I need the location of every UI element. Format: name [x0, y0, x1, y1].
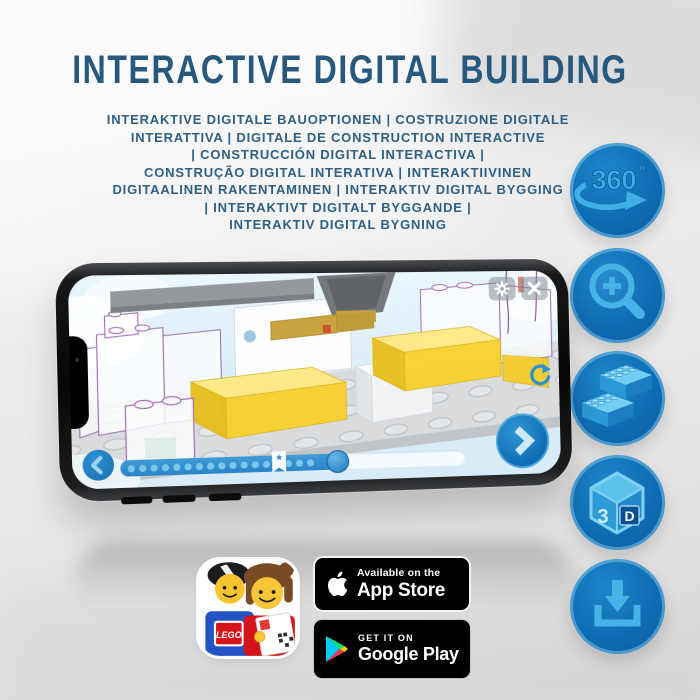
subtitle-line: INTERAKTIV DIGITAL BYGNING: [32, 216, 644, 234]
svg-text:LEGO: LEGO: [216, 630, 242, 640]
zoom-in-icon: [570, 248, 665, 343]
subtitle-line: INTERATTIVA | DIGITALE DE CONSTRUCTION I…: [32, 129, 644, 147]
camera-dot: [75, 358, 79, 362]
google-play-badge[interactable]: GET IT ON Google Play: [313, 619, 471, 679]
subtitle-line: DIGITAALINEN RAKENTAMINEN | INTERAKTIV D…: [32, 181, 644, 199]
phone-frame: ★: [55, 259, 573, 503]
lego-app-icon[interactable]: LEGO: [199, 560, 297, 656]
google-play-tagline: GET IT ON: [358, 633, 459, 643]
previous-step-button[interactable]: [82, 449, 114, 481]
phone-side-button: [163, 495, 196, 503]
lego-app-artwork: LEGO: [199, 560, 297, 656]
app-store-tagline: Available on the: [357, 567, 445, 579]
app-store-label: App Store: [357, 580, 445, 602]
close-icon: [526, 279, 543, 297]
svg-text:D: D: [624, 508, 634, 524]
3d-cube-icon: 3 D: [570, 455, 665, 550]
phone: ★: [55, 259, 573, 503]
poster: INTERACTIVE DIGITAL BUILDING INTERAKTIVE…: [0, 0, 700, 700]
rotate-button[interactable]: [527, 362, 552, 388]
lego-bricks-icon: [570, 351, 665, 446]
svg-text:º: º: [639, 163, 645, 180]
phone-screen: ★: [68, 271, 561, 490]
download-icon: [570, 559, 665, 654]
close-button[interactable]: [521, 276, 548, 300]
star-icon: ★: [275, 452, 283, 462]
subtitle-line: CONSTRUÇÃO DIGITAL INTERATIVA | INTERAKT…: [32, 164, 644, 182]
rotate-icon: [527, 362, 552, 388]
svg-text:3: 3: [597, 506, 608, 528]
svg-text:360: 360: [591, 165, 636, 195]
subtitle-line: INTERAKTIVE DIGITALE BAUOPTIONEN | COSTR…: [32, 111, 644, 129]
google-play-icon: [324, 635, 350, 663]
chevron-right-icon: [497, 415, 547, 467]
next-step-button[interactable]: [495, 413, 549, 469]
settings-button[interactable]: [488, 277, 515, 301]
subtitle-line: | INTERAKTIVT DIGITALT BYGGANDE |: [32, 199, 644, 217]
chevron-left-icon: [82, 449, 114, 481]
subtitle-line: | CONSTRUCCIÓN DIGITAL INTERACTIVA |: [32, 146, 644, 164]
subtitle: INTERAKTIVE DIGITALE BAUOPTIONEN | COSTR…: [32, 111, 644, 234]
apple-icon: [325, 570, 349, 598]
app-store-badge[interactable]: Available on the App Store: [313, 556, 471, 612]
page-title: INTERACTIVE DIGITAL BUILDING: [70, 48, 630, 93]
phone-notch: [68, 336, 89, 429]
360-rotation-icon: 360 º: [570, 143, 665, 238]
google-play-label: Google Play: [358, 644, 459, 665]
gear-icon: [492, 279, 511, 299]
phone-side-button: [121, 496, 152, 504]
phone-side-button: [209, 493, 242, 501]
